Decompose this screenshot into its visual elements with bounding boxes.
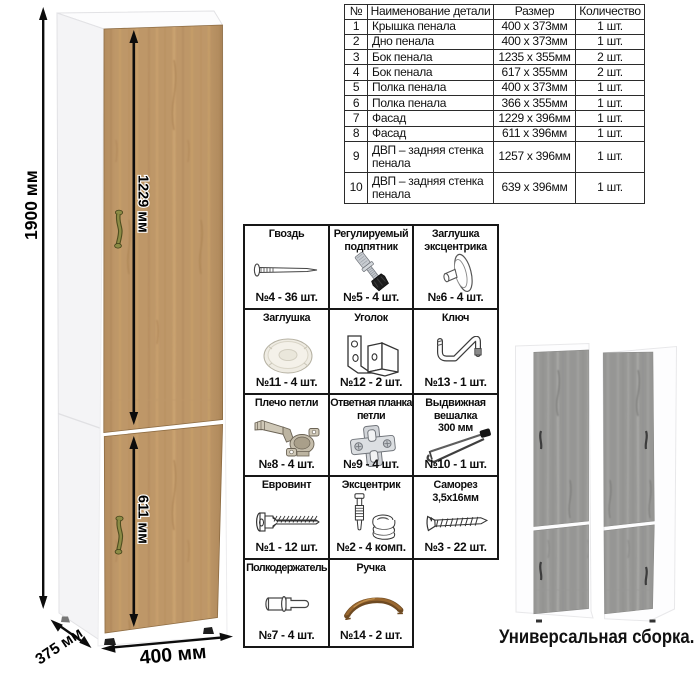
svg-text:375 мм: 375 мм	[33, 625, 87, 669]
svg-text:611 мм: 611 мм	[135, 495, 151, 544]
svg-text:1229 мм: 1229 мм	[135, 175, 151, 233]
svg-text:1900 мм: 1900 мм	[21, 170, 41, 240]
